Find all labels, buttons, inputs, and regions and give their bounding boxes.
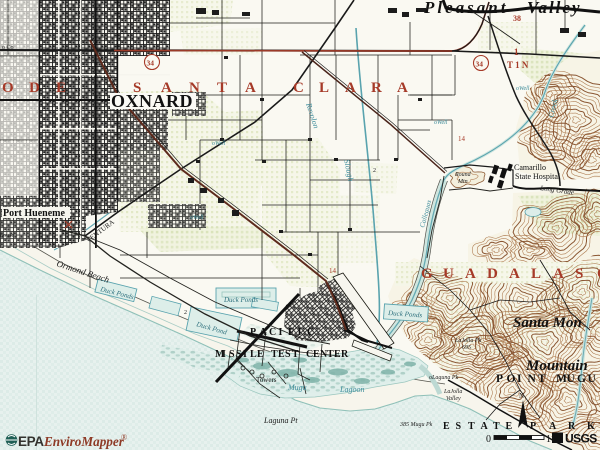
svg-text:G: G	[577, 373, 586, 385]
svg-text:L: L	[531, 266, 541, 282]
svg-text:oWell: oWell	[212, 141, 226, 147]
svg-text:A: A	[397, 80, 408, 96]
svg-text:E: E	[257, 349, 264, 360]
svg-text:I: I	[298, 327, 302, 338]
svg-text:oLaguna Pk: oLaguna Pk	[429, 375, 459, 381]
svg-text:L: L	[250, 349, 257, 360]
svg-text:G: G	[421, 266, 433, 282]
svg-text:A: A	[549, 421, 557, 432]
svg-text:O: O	[2, 80, 14, 96]
svg-text:o Co: o Co	[2, 45, 14, 51]
svg-text:E: E	[56, 80, 66, 96]
svg-text:E: E	[334, 349, 341, 360]
svg-text:L: L	[319, 80, 329, 96]
svg-text:S: S	[285, 349, 291, 360]
svg-text:N: N	[528, 373, 537, 385]
svg-text:U: U	[443, 266, 454, 282]
svg-text:oWell: oWell	[190, 215, 204, 221]
svg-text:I: I	[517, 373, 522, 385]
svg-text:D: D	[487, 266, 498, 282]
svg-text:1: 1	[546, 434, 551, 445]
svg-text:1: 1	[514, 47, 519, 57]
svg-text:T 1 N: T 1 N	[507, 60, 529, 70]
svg-text:Mtn: Mtn	[457, 179, 468, 185]
svg-text:R: R	[568, 421, 576, 432]
svg-text:U: U	[567, 373, 576, 385]
svg-text:I: I	[243, 349, 247, 360]
svg-text:T: T	[292, 349, 299, 360]
svg-text:D: D	[29, 80, 40, 96]
svg-text:I: I	[279, 327, 283, 338]
svg-text:Laguna Pt: Laguna Pt	[263, 416, 298, 425]
svg-text:M: M	[556, 373, 567, 385]
svg-text:I: I	[222, 349, 226, 360]
svg-text:2: 2	[184, 310, 187, 316]
svg-text:T: T	[538, 373, 546, 385]
svg-text:A: A	[260, 327, 268, 338]
svg-text:A: A	[245, 80, 256, 96]
svg-text:C: C	[269, 327, 276, 338]
svg-text:U: U	[588, 373, 597, 385]
svg-text:P: P	[530, 421, 536, 432]
svg-text:Valley: Valley	[446, 396, 461, 402]
svg-text:Camarillo: Camarillo	[514, 163, 546, 172]
svg-text:34: 34	[147, 59, 155, 68]
svg-text:385 Mugu Pk: 385 Mugu Pk	[399, 422, 433, 428]
svg-text:F: F	[288, 327, 294, 338]
svg-text:house: house	[0, 233, 14, 239]
svg-text:T: T	[493, 421, 500, 432]
svg-text:E: E	[313, 349, 320, 360]
svg-text:Lagoon: Lagoon	[339, 385, 364, 394]
svg-text:oWell: oWell	[516, 86, 530, 92]
svg-text:P: P	[496, 373, 503, 385]
svg-text:A: A	[465, 266, 476, 282]
svg-text:Towers: Towers	[256, 376, 277, 384]
svg-text:E: E	[443, 421, 450, 432]
svg-text:USGS: USGS	[565, 432, 597, 446]
svg-text:R: R	[371, 80, 382, 96]
svg-text:O: O	[507, 373, 516, 385]
svg-text:EnviroMapper: EnviroMapper	[43, 434, 125, 449]
svg-text:34: 34	[476, 60, 484, 69]
svg-text:®: ®	[121, 433, 127, 442]
svg-text:Valley: Valley	[527, 0, 582, 17]
svg-text:T: T	[217, 80, 227, 96]
svg-text:Pleasant: Pleasant	[423, 0, 508, 17]
svg-text:14: 14	[458, 135, 466, 143]
svg-text:Santa Mon: Santa Mon	[513, 315, 582, 331]
svg-text:OXNARD: OXNARD	[111, 91, 193, 111]
svg-text:A: A	[553, 266, 564, 282]
svg-text:2: 2	[373, 168, 376, 174]
svg-text:LaJolla Pk: LaJolla Pk	[454, 338, 481, 344]
svg-text:R: R	[341, 349, 349, 360]
svg-text:EPA: EPA	[18, 434, 44, 449]
svg-text:695: 695	[462, 345, 471, 351]
svg-text:S: S	[229, 349, 235, 360]
svg-text:C: C	[293, 80, 304, 96]
svg-text:Round: Round	[454, 172, 472, 178]
svg-text:T: T	[468, 421, 475, 432]
svg-text:P: P	[250, 327, 256, 338]
svg-text:A: A	[509, 266, 520, 282]
svg-text:Mugu: Mugu	[287, 383, 307, 392]
svg-text:Duck Ponds: Duck Ponds	[223, 296, 258, 304]
svg-text:S: S	[575, 266, 583, 282]
svg-text:A: A	[481, 421, 489, 432]
svg-text:S: S	[236, 349, 242, 360]
svg-text:N: N	[519, 392, 524, 400]
svg-text:0: 0	[486, 434, 491, 445]
svg-text:14: 14	[329, 267, 337, 275]
svg-text:S: S	[456, 421, 462, 432]
svg-text:Mountain: Mountain	[525, 358, 588, 374]
svg-text:State Hospital: State Hospital	[515, 172, 561, 181]
svg-text:A: A	[345, 80, 356, 96]
svg-text:E: E	[506, 421, 513, 432]
svg-text:K: K	[587, 421, 595, 432]
svg-text:C: C	[307, 327, 314, 338]
svg-text:T: T	[327, 349, 334, 360]
svg-text:T: T	[271, 349, 278, 360]
svg-text:E: E	[278, 349, 285, 360]
svg-text:oWell: oWell	[434, 120, 448, 126]
svg-text:38: 38	[513, 14, 521, 23]
svg-text:Port Hueneme: Port Hueneme	[3, 208, 65, 219]
svg-text:LaJolla: LaJolla	[443, 389, 462, 395]
